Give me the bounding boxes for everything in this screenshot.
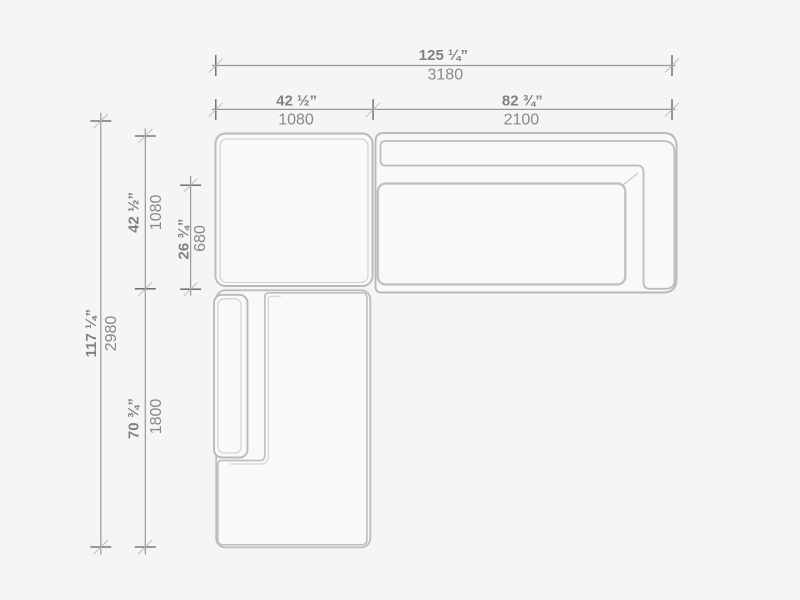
svg-text:125 ¼”: 125 ¼” xyxy=(419,47,468,64)
svg-text:26 ¾”: 26 ¾” xyxy=(175,219,192,260)
svg-text:1800: 1800 xyxy=(148,399,165,435)
svg-text:2980: 2980 xyxy=(103,316,120,352)
svg-text:42 ½”: 42 ½” xyxy=(276,93,317,110)
svg-text:1080: 1080 xyxy=(148,195,165,231)
svg-text:3180: 3180 xyxy=(428,67,464,84)
svg-text:82 ¾”: 82 ¾” xyxy=(502,93,543,110)
svg-text:117 ¼”: 117 ¼” xyxy=(83,309,100,357)
svg-text:42 ½”: 42 ½” xyxy=(126,192,143,233)
svg-text:2100: 2100 xyxy=(504,112,540,129)
svg-text:1080: 1080 xyxy=(278,112,314,129)
svg-text:70 ¾”: 70 ¾” xyxy=(126,398,143,439)
svg-text:680: 680 xyxy=(192,225,209,252)
